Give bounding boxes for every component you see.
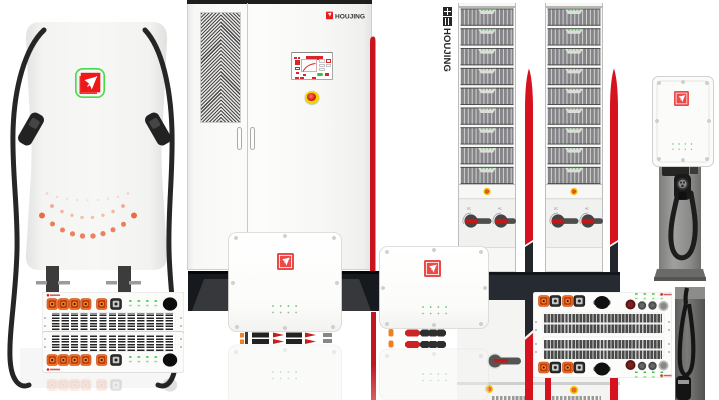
svg-text:HOUJING: HOUJING <box>335 13 365 20</box>
